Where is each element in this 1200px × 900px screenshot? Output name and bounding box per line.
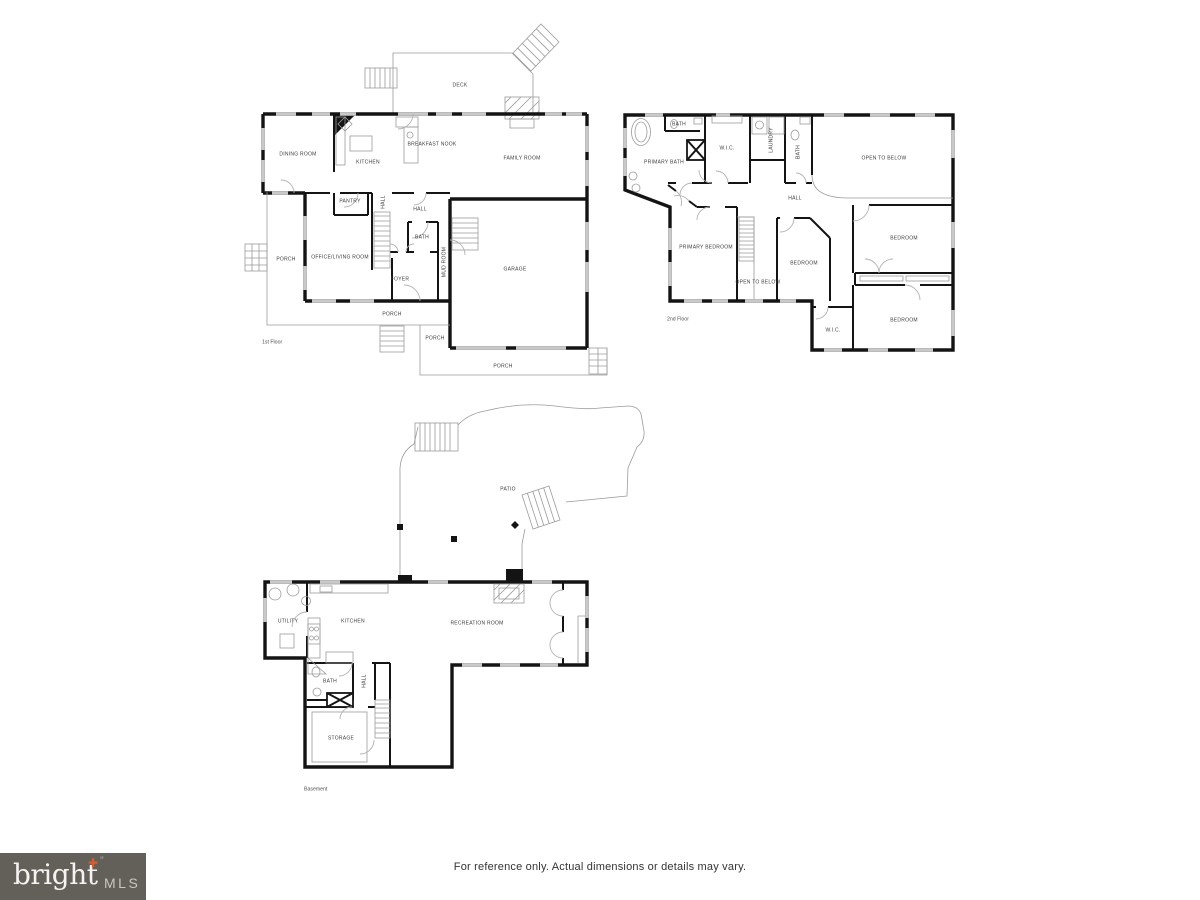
- room-label-hall-1: HALL: [413, 206, 427, 212]
- bath-fixtures-2: [629, 116, 810, 192]
- floor-label-basement: Basement: [304, 786, 328, 792]
- room-label-kitchen-b: KITCHEN: [341, 618, 365, 624]
- windows-2: [625, 115, 953, 350]
- utility-fixtures: [269, 584, 311, 648]
- porch-stairs-left-icon: [245, 244, 267, 271]
- basement-stairs-icon: [375, 700, 390, 738]
- room-label-hall-stairs: HALL: [380, 195, 386, 209]
- room-label-primary-bedroom: PRIMARY BEDROOM: [679, 244, 733, 250]
- basement-kitchen-fixtures: [308, 584, 388, 674]
- room-label-kitchen-1: KITCHEN: [356, 159, 380, 165]
- brightmls-logo-word: bright: [13, 858, 97, 891]
- room-label-pantry: PANTRY: [339, 198, 361, 204]
- interior-stairs-icon: [374, 212, 390, 268]
- floor-label-first: 1st Floor: [262, 339, 282, 345]
- basement-closet-icon: [327, 693, 353, 707]
- room-label-bath-a: BATH: [672, 121, 686, 127]
- patio-diagonal-stairs-icon: [522, 486, 560, 529]
- room-label-porch-left: PORCH: [276, 256, 295, 262]
- room-label-bath-b: BATH: [795, 145, 801, 159]
- room-label-foyer: FOYER: [391, 276, 410, 282]
- brightmls-logo-suffix: MLS: [104, 875, 140, 891]
- room-label-bedroom-c: BEDROOM: [890, 317, 918, 323]
- stairs-2-icon: [739, 217, 754, 261]
- floor-label-second: 2nd Floor: [667, 316, 689, 322]
- room-label-garage: GARAGE: [504, 266, 527, 272]
- doors-b: [292, 590, 563, 754]
- footer-disclaimer: For reference only. Actual dimensions or…: [0, 861, 1200, 873]
- garage-stairs-icon: [452, 218, 478, 250]
- floor-plan-first: DECK DINING ROOM KITCHEN BREAKFAST NOOK …: [245, 24, 607, 375]
- room-label-bath-1: BATH: [415, 234, 429, 240]
- porch-stairs-rear-icon: [589, 348, 607, 374]
- exterior-walls-2: [625, 115, 953, 350]
- basement-bath-fixtures: [312, 667, 321, 696]
- room-label-laundry: LAUNDRY: [768, 127, 774, 153]
- brightmls-logo-quote-icon: ”: [100, 855, 104, 867]
- room-label-dining: DINING ROOM: [279, 151, 316, 157]
- room-label-wic-a: W.I.C.: [719, 145, 734, 151]
- room-label-bath-b2: BATH: [323, 678, 337, 684]
- deck-stairs-icon: [365, 68, 397, 88]
- patio-door-jamb: [398, 575, 412, 583]
- windows-b: [265, 582, 587, 665]
- shower-icon: [687, 140, 705, 160]
- rec-fireplace-icon: [494, 584, 524, 603]
- brightmls-logo: bright ✚ ” MLS: [0, 853, 146, 900]
- room-label-open-below-b: OPEN TO BELOW: [735, 279, 780, 285]
- room-label-hall-b: HALL: [361, 674, 367, 688]
- room-label-porch-rear: PORCH: [493, 363, 512, 369]
- room-label-patio: PATIO: [500, 486, 516, 492]
- room-label-open-below-a: OPEN TO BELOW: [861, 155, 906, 161]
- exterior-walls-b: [265, 582, 587, 767]
- patio-door-jamb-2: [506, 569, 523, 582]
- floor-plan-second: PRIMARY BATH BATH W.I.C. LAUNDRY BATH OP…: [625, 115, 953, 350]
- room-label-office: OFFICE/LIVING ROOM: [311, 254, 369, 260]
- room-label-hall-2: HALL: [788, 195, 802, 201]
- room-label-deck: DECK: [453, 82, 468, 88]
- interior-walls-2: [665, 115, 953, 350]
- room-label-mudroom: MUD ROOM: [441, 247, 447, 277]
- room-label-utility: UTILITY: [278, 618, 299, 624]
- room-label-wic-b: W.I.C.: [825, 327, 840, 333]
- patio-outline: [397, 405, 644, 582]
- floor-plan-canvas: DECK DINING ROOM KITCHEN BREAKFAST NOOK …: [0, 0, 1200, 900]
- kitchen-fixtures: [336, 117, 418, 165]
- patio-stairs-icon: [415, 423, 458, 451]
- room-label-storage: STORAGE: [328, 735, 355, 741]
- deck-diagonal-stairs-icon: [513, 24, 559, 71]
- room-label-bedroom-b: BEDROOM: [890, 235, 918, 241]
- room-label-primary-bath: PRIMARY BATH: [644, 159, 684, 165]
- room-label-family: FAMILY ROOM: [503, 155, 540, 161]
- brightmls-logo-accent-icon: ✚: [88, 856, 98, 870]
- room-label-bedroom-a: BEDROOM: [790, 260, 818, 266]
- room-label-porch-bottom: PORCH: [382, 311, 401, 317]
- room-label-porch-small: PORCH: [425, 335, 444, 341]
- deck-outline: [365, 24, 559, 114]
- floorplan-page: DECK DINING ROOM KITCHEN BREAKFAST NOOK …: [0, 0, 1200, 900]
- room-label-breakfast: BREAKFAST NOOK: [408, 141, 457, 147]
- floor-plan-basement: PATIO UTILITY KITCHEN RECREATION ROOM BA…: [265, 405, 644, 793]
- room-label-recreation: RECREATION ROOM: [450, 620, 503, 626]
- porch-stairs-bottom-icon: [380, 326, 404, 352]
